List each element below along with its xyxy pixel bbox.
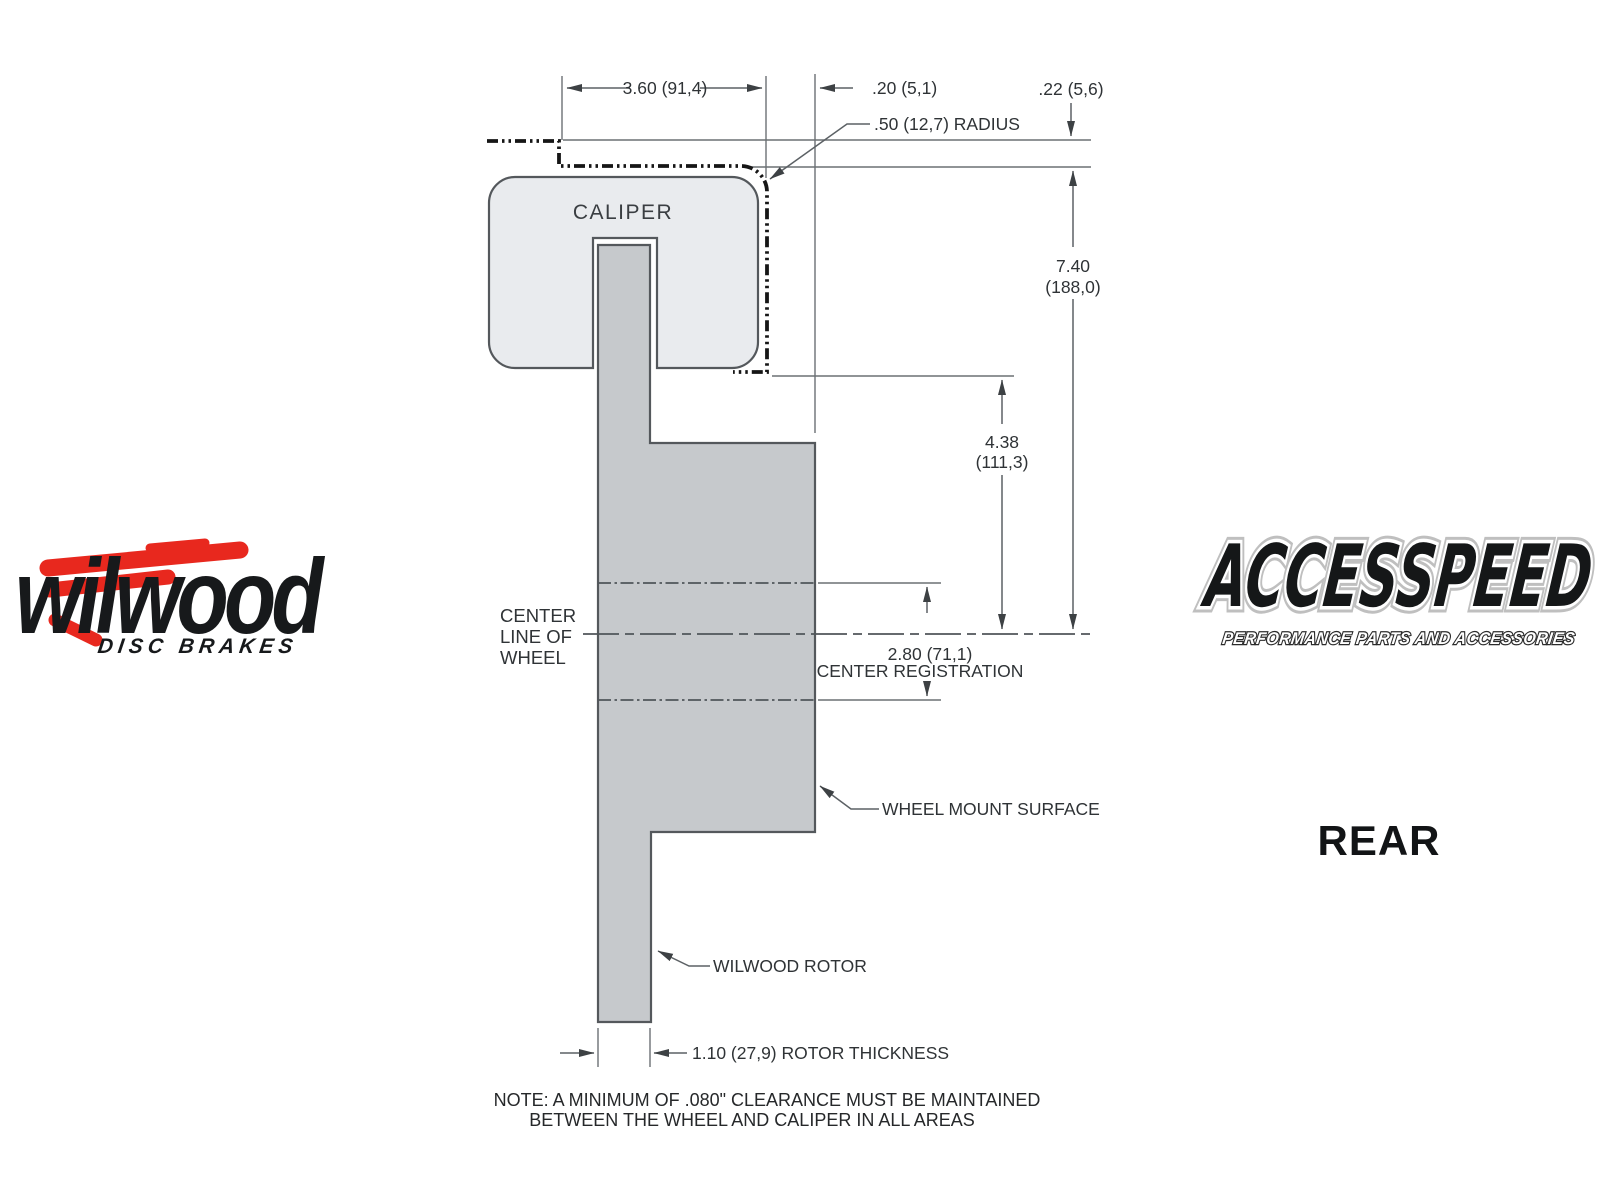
wilwood-logo: wilwood DISC BRAKES [15,538,326,658]
center-registration-label: CENTER REGISTRATION [817,661,1024,681]
centerline-label-3: WHEEL [500,647,566,668]
dim-4-38-in: 4.38 [985,432,1019,452]
dim-rotor-thickness: 1.10 (27,9) ROTOR THICKNESS [692,1043,949,1063]
dim-0-22: .22 (5,6) [1038,79,1103,99]
dim-radius: .50 (12,7) RADIUS [874,114,1020,134]
technical-diagram-canvas: 3.60 (91,4) .20 (5,1) .22 (5,6) .50 (12,… [0,0,1600,1200]
clearance-note: NOTE: A MINIMUM OF .080" CLEARANCE MUST … [494,1090,1041,1130]
dim-7-40-mm: (188,0) [1045,277,1100,297]
dim-0-20: .20 (5,1) [872,78,937,98]
dim-4-38-mm: (111,3) [976,452,1029,472]
wilwood-disc-brakes-text: DISC BRAKES [96,635,299,658]
dim-7-40-in: 7.40 [1056,256,1090,276]
dim-3-60: 3.60 (91,4) [623,78,708,98]
note-line-1: NOTE: A MINIMUM OF .080" CLEARANCE MUST … [494,1090,1041,1110]
accesspeed-tagline-text: PERFORMANCE PARTS AND ACCESSORIES [1221,630,1576,649]
wilwood-rotor-label: WILWOOD ROTOR [713,956,867,976]
radius-leader [770,124,870,179]
rotor-leader [658,951,710,966]
wheel-mount-surface-label: WHEEL MOUNT SURFACE [882,799,1100,819]
centerline-label-2: LINE OF [500,626,572,647]
wheel-mount-leader [820,786,879,809]
accesspeed-logo: ACCESSPEED ACCESSPEED PERFORMANCE PARTS … [1197,526,1597,648]
brake-clearance-drawing-page: 3.60 (91,4) .20 (5,1) .22 (5,6) .50 (12,… [0,0,1600,1200]
note-line-2: BETWEEN THE WHEEL AND CALIPER IN ALL ARE… [529,1110,974,1130]
caliper-label: CALIPER [573,201,673,224]
accesspeed-text: ACCESSPEED [1197,526,1597,627]
centerline-label-1: CENTER [500,605,576,626]
view-label-rear: REAR [1317,817,1440,864]
